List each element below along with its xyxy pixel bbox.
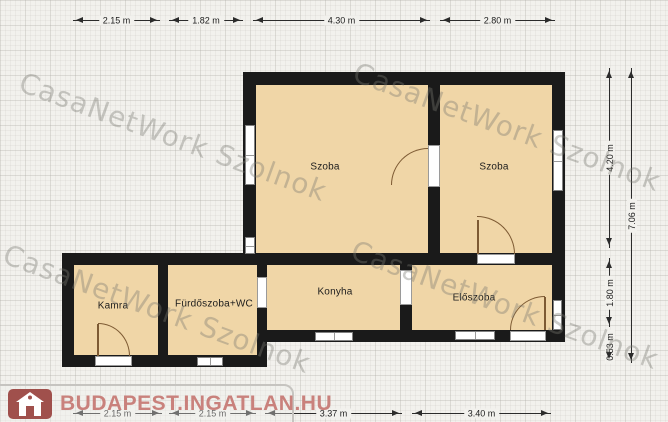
- dimension-top-4: 2.80 m: [440, 20, 555, 21]
- window: [315, 332, 353, 341]
- wall: [62, 355, 267, 367]
- room-label-konyha: Konyha: [317, 287, 352, 298]
- dimension-right-total: 7.06 m: [631, 68, 632, 363]
- house-icon: [8, 389, 52, 419]
- floorplan-canvas: CasaNetWork Szolnok CasaNetWork Szolnok …: [0, 0, 668, 422]
- room-label-szoba-right: Szoba: [479, 162, 508, 173]
- door-opening: [257, 277, 267, 308]
- window: [197, 357, 223, 366]
- door-opening: [428, 145, 440, 187]
- door-leaf: [477, 220, 479, 254]
- dimension-top-1: 2.15 m: [73, 20, 160, 21]
- dimension-top-2: 1.82 m: [169, 20, 243, 21]
- dimension-bottom-4: 3.40 m: [412, 413, 551, 414]
- door-leaf: [97, 324, 99, 356]
- window: [455, 331, 495, 340]
- door-opening: [95, 356, 132, 366]
- door-opening: [477, 254, 515, 264]
- portal-logo-text: BUDAPEST.INGATLAN.HU: [60, 392, 332, 416]
- dimension-right-2: 1.80 m: [609, 258, 610, 327]
- portal-logo: BUDAPEST.INGATLAN.HU: [8, 389, 332, 419]
- window: [245, 237, 255, 254]
- dimension-top-3: 4.30 m: [253, 20, 430, 21]
